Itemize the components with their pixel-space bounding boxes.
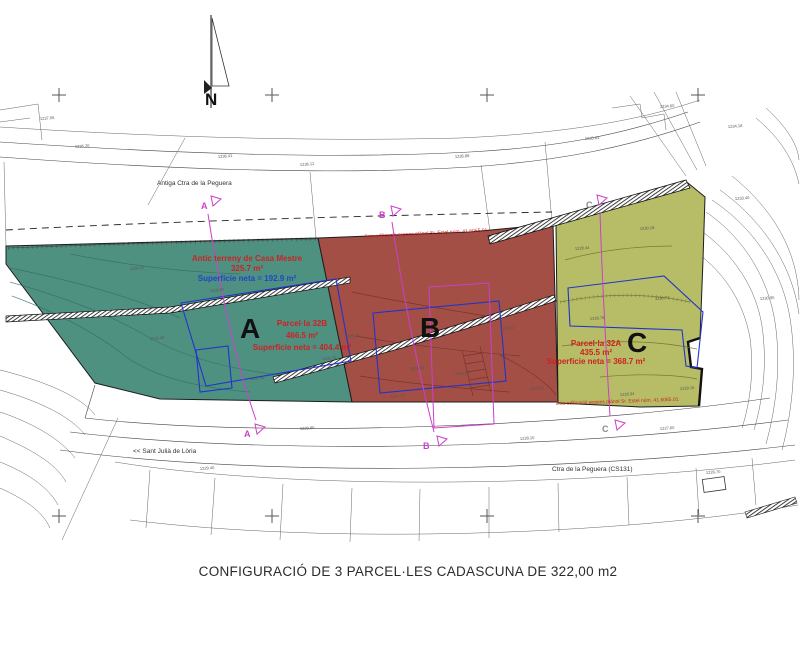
map-line	[0, 412, 75, 458]
spot-elevation: 1235.64	[585, 135, 601, 141]
grid-crosshair	[265, 509, 279, 523]
direction-label: << Sant Julià de Lòria	[133, 448, 197, 455]
map-line	[0, 100, 700, 139]
spot-elevation: 1228.80	[300, 425, 316, 431]
parcel-c-area: 435.5 m²	[580, 348, 612, 357]
spot-elevation: 1228.10	[520, 435, 536, 441]
old-road-label: Antiga Ctra de la Peguera	[157, 180, 232, 187]
section-label-a-bottom: A	[244, 429, 251, 439]
parcel-a-letter: A	[240, 313, 260, 344]
spot-elevation: 1234.60	[660, 103, 676, 109]
section-arrow-b-top	[391, 206, 401, 216]
spot-elevation: 1232.10	[322, 355, 338, 361]
section-label-c-bottom: C	[602, 424, 609, 434]
spot-elevation: 1231.95	[250, 375, 266, 381]
spot-elevation: 1236.12	[300, 161, 316, 167]
section-arrow-a-bottom	[255, 424, 265, 434]
grid-crosshair	[480, 88, 494, 102]
section-label-b-top: B	[379, 210, 386, 220]
wall-hatch-bottom-right	[745, 497, 797, 518]
spot-elevation: 1235.88	[455, 153, 471, 159]
parcel-a-area: 466.5 m²	[286, 331, 318, 340]
spot-elevation: 1234.52	[130, 265, 146, 271]
parcel-c-net-area: Superficie neta = 368.7 m²	[547, 357, 646, 366]
site-plan-drawing: A A B B C C A B C Antic terreny de Casa …	[0, 0, 800, 656]
spot-elevation: 1228.76	[590, 315, 606, 321]
spot-elevation: 1237.05	[40, 115, 56, 121]
spot-elevation: 1230.18	[640, 225, 656, 231]
north-arrow: N	[204, 15, 229, 109]
grid-crosshair	[52, 88, 66, 102]
spot-elevation: 1233.40	[735, 195, 751, 201]
spot-elevation: 1228.70	[706, 469, 722, 475]
contour-lines-right	[696, 108, 799, 450]
north-label: N	[205, 90, 217, 109]
map-line	[115, 460, 795, 482]
spot-elevation: 1229.40	[200, 465, 216, 471]
section-arrow-c-bottom	[615, 420, 625, 430]
spot-elevation: 1231.42	[410, 365, 426, 371]
parcel-c-letter: C	[627, 327, 647, 358]
old-terrain-net-area: Superficie neta = 192.9 m²	[198, 274, 297, 283]
drawing-caption: CONFIGURACIÓ DE 3 PARCEL·LES CADASCUNA D…	[199, 564, 618, 579]
section-arrow-b-bottom	[437, 436, 447, 446]
grid-crosshair	[691, 509, 705, 523]
spot-elevation: 1231.66	[455, 370, 471, 376]
spot-elevation: 1228.52	[500, 325, 516, 331]
parcel-c-lot: Parcel·la 32A	[571, 339, 621, 348]
spot-elevation: 1230.90	[760, 295, 776, 301]
map-line	[0, 488, 50, 528]
section-arrow-a-top	[211, 196, 221, 206]
parcel-a-net-area: Superficie neta = 404.4 m²	[253, 343, 352, 352]
map-line	[148, 138, 185, 205]
spot-elevation: 1228.34	[620, 391, 636, 397]
map-line	[0, 370, 95, 415]
spot-elevation: 1228.22	[530, 385, 546, 391]
grid-crosshair	[265, 88, 279, 102]
grid-crosshair	[52, 509, 66, 523]
map-line	[712, 200, 793, 450]
map-line	[0, 436, 66, 482]
section-label-c-top: C	[586, 200, 593, 210]
map-line	[146, 458, 756, 542]
small-building-outline	[702, 477, 726, 493]
spot-elevation: 1236.20	[75, 143, 91, 149]
spot-elevation: 1228.36	[345, 333, 361, 339]
spot-elevation: 1234.18	[728, 123, 744, 129]
site-plan-page: A A B B C C A B C Antic terreny de Casa …	[0, 0, 800, 656]
spot-elevation: 1229.44	[575, 245, 591, 251]
spot-elevation: 1236.41	[218, 153, 234, 159]
map-line	[0, 390, 85, 435]
spot-elevation: 1229.16	[680, 385, 696, 391]
map-line	[0, 112, 688, 155]
section-label-a-top: A	[201, 201, 208, 211]
spot-elevation: 1232.40	[150, 335, 166, 341]
map-line	[706, 212, 778, 444]
old-terrain-area: 325.7 m²	[231, 264, 263, 273]
parcel-b-letter: B	[420, 312, 440, 343]
map-line	[756, 108, 799, 184]
main-road-label: Ctra de la Peguera (CS131)	[552, 466, 633, 473]
section-label-b-bottom: B	[423, 441, 430, 451]
parcel-a-lot: Parcel·la 32B	[277, 319, 327, 328]
spot-elevation: 1230.74	[655, 295, 671, 301]
north-arrow-head	[212, 18, 229, 86]
old-terrain-name: Antic terreny de Casa Mestre	[192, 254, 303, 263]
road-lines-bottom	[60, 398, 798, 542]
dashed-boundary	[6, 212, 552, 230]
spot-elevation: 1224.74	[390, 393, 406, 399]
map-line	[0, 104, 42, 140]
grid-crosshair	[480, 509, 494, 523]
spot-elevation: 1227.60	[660, 425, 676, 431]
map-line	[0, 462, 58, 505]
grid-crosshair	[691, 88, 705, 102]
spot-elevation: 1233.87	[210, 287, 226, 293]
map-line	[0, 122, 700, 171]
